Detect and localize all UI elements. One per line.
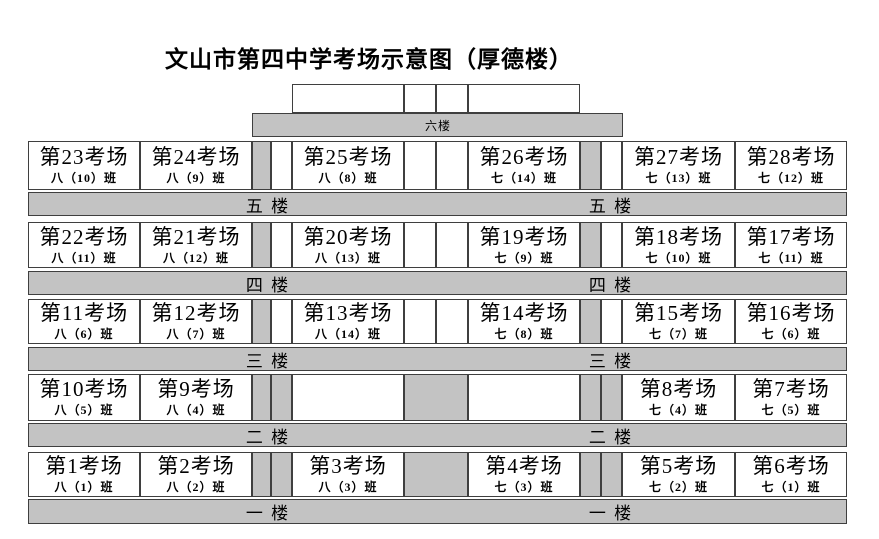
exam-room-cell: 第7考场七（5）班 <box>735 374 847 421</box>
room-number: 第24考场 <box>152 145 241 170</box>
room-number: 第8考场 <box>640 377 718 402</box>
room-class: 八（11）班 <box>51 250 116 266</box>
room-class: 七（11）班 <box>758 250 823 266</box>
room-class: 八（6）班 <box>54 326 113 342</box>
floor-label: 四 楼 <box>223 272 313 294</box>
room-number: 第18考场 <box>634 225 723 250</box>
floor-label: 五 楼 <box>223 193 313 215</box>
floor-label: 二 楼 <box>223 424 313 446</box>
exam-room-cell: 第24考场八（9）班 <box>140 141 252 190</box>
stairwell-cell <box>252 452 271 497</box>
room-number: 第23考场 <box>40 145 129 170</box>
exam-room-cell: 第13考场八（14）班 <box>292 299 404 344</box>
room-number: 第3考场 <box>309 454 387 479</box>
corridor-cell <box>601 222 622 268</box>
room-class: 八（4）班 <box>166 402 225 418</box>
exam-room-cell: 第9考场八（4）班 <box>140 374 252 421</box>
room-number: 第17考场 <box>747 225 836 250</box>
stairwell-cell <box>580 452 601 497</box>
room-class: 七（14）班 <box>491 170 557 186</box>
stairwell-cell <box>601 374 622 421</box>
room-number: 第22考场 <box>40 225 129 250</box>
room-number: 第16考场 <box>747 301 836 326</box>
room-class: 七（1）班 <box>761 479 820 495</box>
exam-room-cell: 第19考场七（9）班 <box>468 222 580 268</box>
exam-room-cell: 第8考场七（4）班 <box>622 374 735 421</box>
room-class: 八（14）班 <box>315 326 381 342</box>
page-title: 文山市第四中学考场示意图（厚德楼） <box>0 40 738 74</box>
room-number: 第10考场 <box>40 377 129 402</box>
room-number: 第25考场 <box>304 145 393 170</box>
sixth-floor-room <box>468 84 580 113</box>
exam-room-cell: 第27考场七（13）班 <box>622 141 735 190</box>
room-number: 第12考场 <box>152 301 241 326</box>
exam-room-cell: 第21考场八（12）班 <box>140 222 252 268</box>
exam-room-cell: 第2考场八（2）班 <box>140 452 252 497</box>
room-class: 七（9）班 <box>494 250 553 266</box>
room-class: 七（7）班 <box>649 326 708 342</box>
corridor-cell <box>601 141 622 190</box>
stairwell-cell <box>580 374 601 421</box>
floor-bar: 一 楼一 楼 <box>28 499 847 524</box>
corridor-cell <box>271 299 292 344</box>
exam-room-cell: 第10考场八（5）班 <box>28 374 140 421</box>
room-number: 第4考场 <box>485 454 563 479</box>
room-number: 第20考场 <box>304 225 393 250</box>
exam-room-cell: 第26考场七（14）班 <box>468 141 580 190</box>
floor-label: 四 楼 <box>566 272 656 294</box>
room-number: 第1考场 <box>45 454 123 479</box>
room-number: 第28考场 <box>747 145 836 170</box>
floor-bar: 六楼 <box>252 113 623 137</box>
room-class: 八（3）班 <box>318 479 377 495</box>
stairwell-cell <box>252 299 271 344</box>
room-class: 八（12）班 <box>163 250 229 266</box>
exam-room-cell: 第15考场七（7）班 <box>622 299 735 344</box>
room-number: 第27考场 <box>634 145 723 170</box>
exam-room-cell: 第3考场八（3）班 <box>292 452 404 497</box>
sixth-floor-room <box>436 84 468 113</box>
stairwell-cell <box>580 222 601 268</box>
room-class: 八（10）班 <box>51 170 117 186</box>
corridor-cell <box>404 299 436 344</box>
room-class: 七（8）班 <box>494 326 553 342</box>
floor-label: 五 楼 <box>566 193 656 215</box>
room-number: 第11考场 <box>40 301 128 326</box>
stairwell-cell <box>271 374 292 421</box>
room-number: 第19考场 <box>480 225 569 250</box>
stairwell-cell <box>404 452 468 497</box>
room-number: 第9考场 <box>157 377 235 402</box>
corridor-cell <box>271 141 292 190</box>
sixth-floor-room <box>292 84 404 113</box>
room-number: 第7考场 <box>752 377 830 402</box>
floor-bar: 三 楼三 楼 <box>28 347 847 371</box>
empty-room-cell <box>292 374 404 421</box>
room-class: 七（13）班 <box>645 170 711 186</box>
room-class: 七（6）班 <box>761 326 820 342</box>
exam-room-cell: 第22考场八（11）班 <box>28 222 140 268</box>
corridor-cell <box>436 299 468 344</box>
exam-room-cell: 第16考场七（6）班 <box>735 299 847 344</box>
room-class: 七（4）班 <box>649 402 708 418</box>
floor-label: 一 楼 <box>566 500 656 523</box>
stairwell-cell <box>580 299 601 344</box>
exam-room-cell: 第18考场七（10）班 <box>622 222 735 268</box>
room-class: 八（7）班 <box>166 326 225 342</box>
empty-room-cell <box>468 374 580 421</box>
stairwell-cell <box>601 452 622 497</box>
stairwell-cell <box>580 141 601 190</box>
floor-bar: 二 楼二 楼 <box>28 423 847 447</box>
exam-room-cell: 第23考场八（10）班 <box>28 141 140 190</box>
stairwell-cell <box>252 141 271 190</box>
exam-room-cell: 第17考场七（11）班 <box>735 222 847 268</box>
room-number: 第5考场 <box>640 454 718 479</box>
room-class: 八（2）班 <box>166 479 225 495</box>
room-number: 第15考场 <box>634 301 723 326</box>
room-class: 八（1）班 <box>54 479 113 495</box>
sixth-floor-room <box>404 84 436 113</box>
exam-room-cell: 第20考场八（13）班 <box>292 222 404 268</box>
room-class: 七（3）班 <box>494 479 553 495</box>
floor-label: 三 楼 <box>223 348 313 370</box>
building-diagram: 文山市第四中学考场示意图（厚德楼） 六楼第23考场八（10）班第24考场八（9）… <box>0 0 879 539</box>
floor-label: 一 楼 <box>223 500 313 523</box>
floor-bar: 五 楼五 楼 <box>28 192 847 216</box>
corridor-cell <box>404 222 436 268</box>
corridor-cell <box>601 299 622 344</box>
corridor-cell <box>404 141 436 190</box>
stairwell-cell <box>252 222 271 268</box>
corridor-cell <box>271 222 292 268</box>
room-number: 第14考场 <box>480 301 569 326</box>
room-class: 七（2）班 <box>649 479 708 495</box>
stairwell-cell <box>252 374 271 421</box>
room-class: 七（5）班 <box>761 402 820 418</box>
exam-room-cell: 第14考场七（8）班 <box>468 299 580 344</box>
room-class: 八（9）班 <box>166 170 225 186</box>
exam-room-cell: 第11考场八（6）班 <box>28 299 140 344</box>
exam-room-cell: 第5考场七（2）班 <box>622 452 735 497</box>
room-number: 第26考场 <box>480 145 569 170</box>
stairwell-cell <box>271 452 292 497</box>
corridor-cell <box>436 222 468 268</box>
corridor-cell <box>436 141 468 190</box>
room-class: 七（12）班 <box>758 170 824 186</box>
exam-room-cell: 第4考场七（3）班 <box>468 452 580 497</box>
room-class: 七（10）班 <box>645 250 711 266</box>
floor-bar: 四 楼四 楼 <box>28 271 847 295</box>
floor-label: 三 楼 <box>566 348 656 370</box>
exam-room-cell: 第6考场七（1）班 <box>735 452 847 497</box>
room-class: 八（8）班 <box>318 170 377 186</box>
exam-room-cell: 第12考场八（7）班 <box>140 299 252 344</box>
room-class: 八（5）班 <box>54 402 113 418</box>
exam-room-cell: 第25考场八（8）班 <box>292 141 404 190</box>
exam-room-cell: 第1考场八（1）班 <box>28 452 140 497</box>
exam-room-cell: 第28考场七（12）班 <box>735 141 847 190</box>
floor-label: 二 楼 <box>566 424 656 446</box>
room-number: 第2考场 <box>157 454 235 479</box>
stairwell-cell <box>404 374 468 421</box>
room-number: 第13考场 <box>304 301 393 326</box>
room-number: 第6考场 <box>752 454 830 479</box>
room-class: 八（13）班 <box>315 250 381 266</box>
room-number: 第21考场 <box>152 225 241 250</box>
floor-label: 六楼 <box>393 114 483 136</box>
